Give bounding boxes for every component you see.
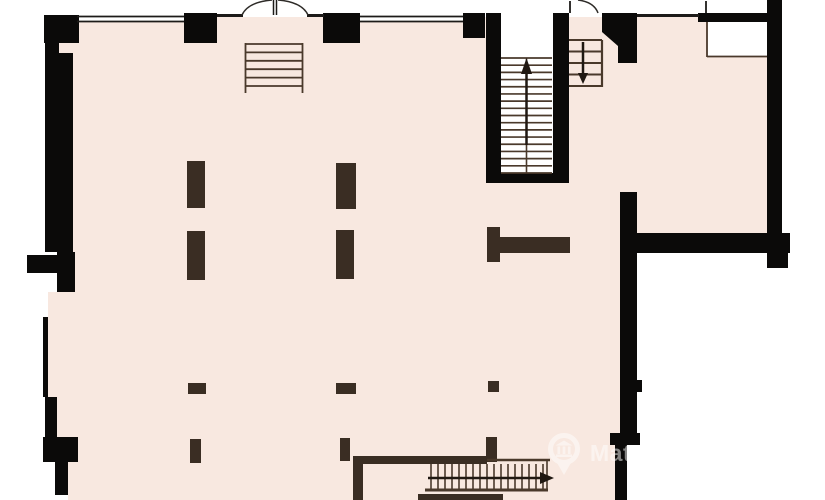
- door-swing-arcs: [242, 0, 598, 15]
- floor-area: [48, 17, 767, 500]
- floorplan-canvas: MatchOffice: [0, 0, 825, 500]
- floor-notch: [59, 43, 77, 53]
- floor-plan-shapes: [27, 0, 790, 500]
- watermark-text: MatchOffice: [590, 440, 727, 466]
- floor-plan: MatchOffice: [0, 0, 825, 500]
